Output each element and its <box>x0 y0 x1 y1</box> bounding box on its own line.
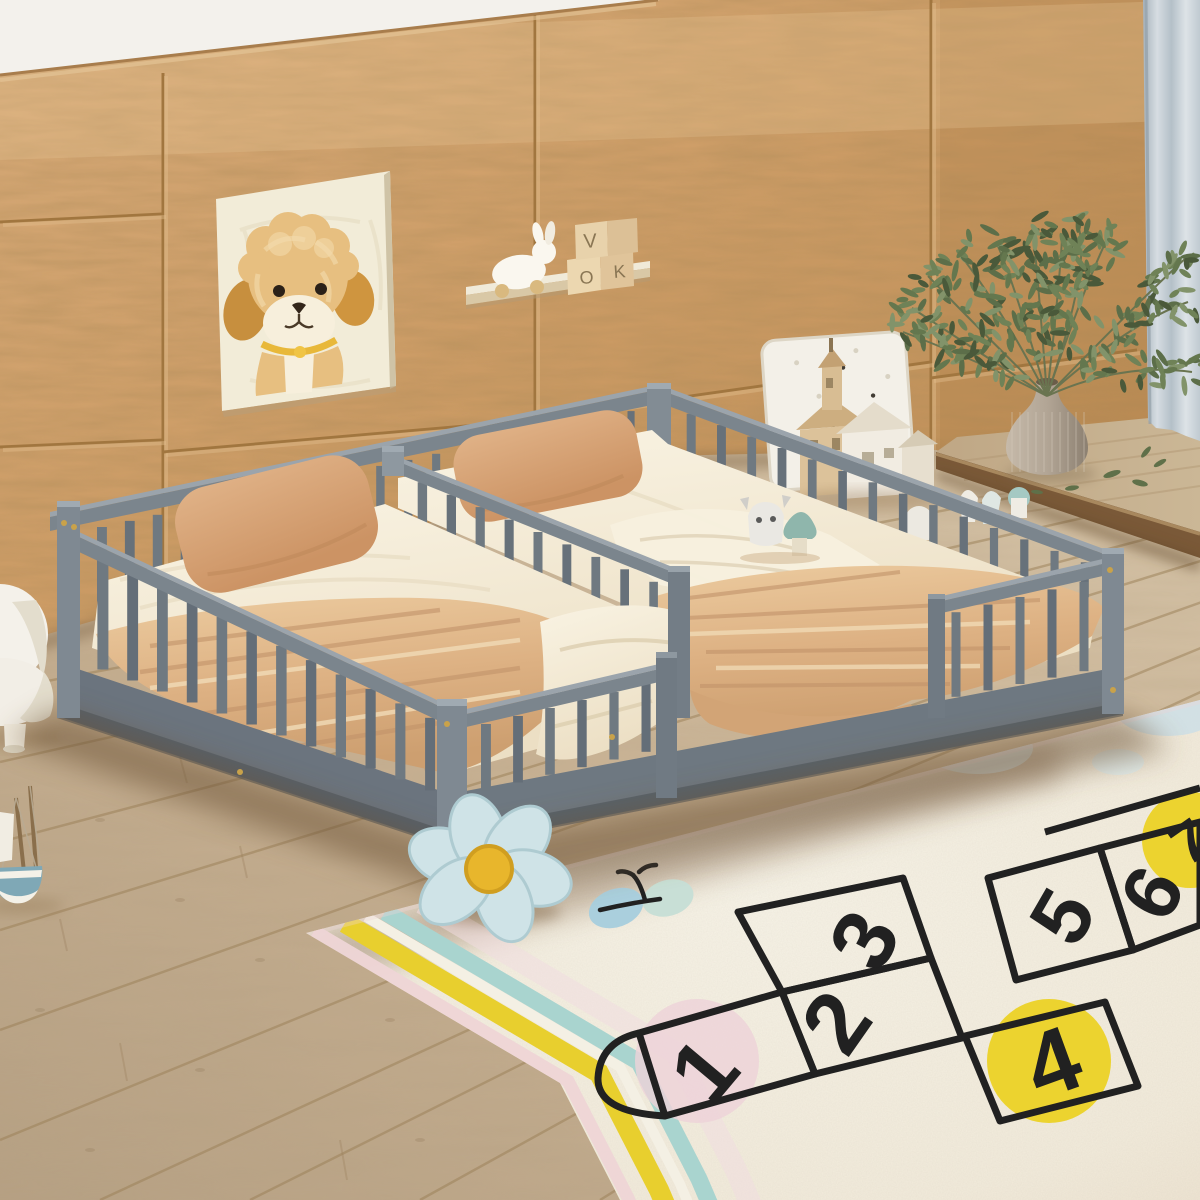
svg-text:O: O <box>579 267 594 288</box>
svg-text:V: V <box>583 230 599 253</box>
svg-text:K: K <box>613 261 626 282</box>
